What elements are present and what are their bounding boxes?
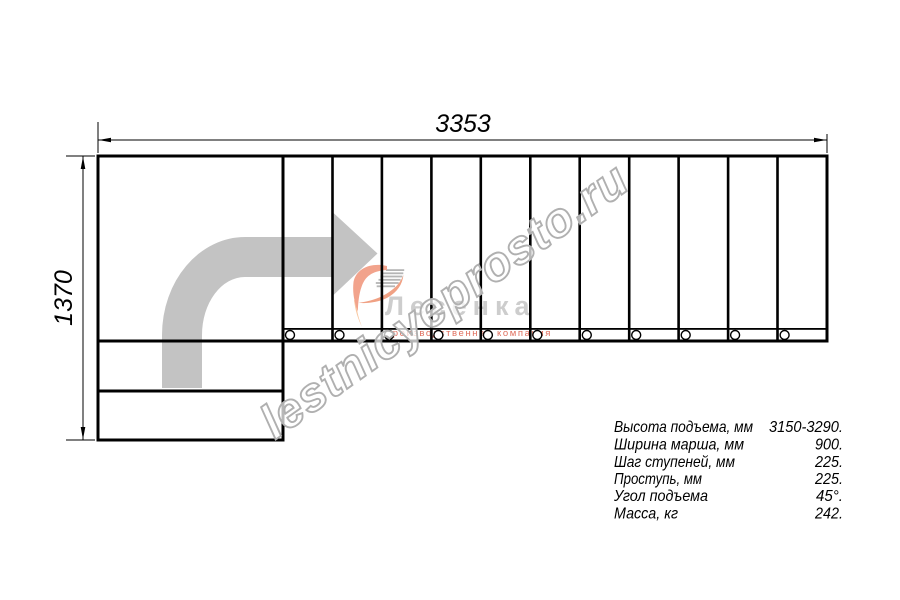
svg-text:Шаг ступеней, мм: Шаг ступеней, мм xyxy=(614,454,735,471)
svg-text:242.: 242. xyxy=(814,506,843,523)
svg-text:3353: 3353 xyxy=(435,110,491,138)
svg-text:900.: 900. xyxy=(815,437,843,454)
svg-text:Угол подъема: Угол подъема xyxy=(613,488,708,505)
svg-text:Высота подъема, мм: Высота подъема, мм xyxy=(614,419,753,436)
svg-text:Масса, кг: Масса, кг xyxy=(614,506,678,523)
svg-text:225.: 225. xyxy=(814,454,843,471)
svg-text:Ширина марша, мм: Ширина марша, мм xyxy=(614,437,744,454)
svg-text:1370: 1370 xyxy=(50,270,78,326)
svg-text:45°.: 45°. xyxy=(816,488,843,505)
svg-text:Проступь, мм: Проступь, мм xyxy=(614,471,702,488)
svg-text:225.: 225. xyxy=(814,471,843,488)
svg-text:3150-3290.: 3150-3290. xyxy=(769,419,843,436)
